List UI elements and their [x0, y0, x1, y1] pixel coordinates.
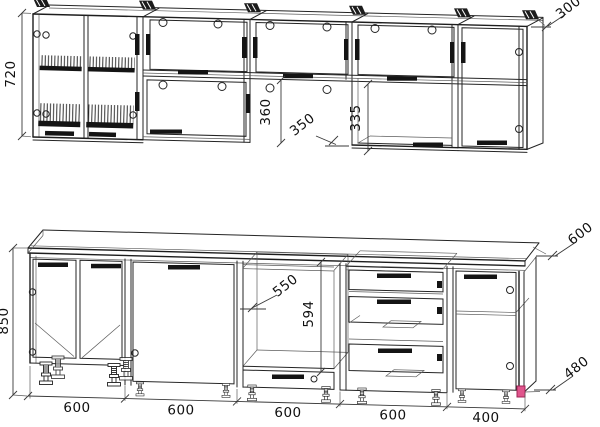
dim-label-335: 335	[348, 104, 364, 131]
dim-label-width-2: 600	[167, 403, 194, 419]
base-cabinet4-drawers	[340, 251, 457, 393]
wall-cabinet-dishrack	[34, 15, 136, 138]
dim-label-720: 720	[3, 60, 19, 87]
handle-bar	[272, 375, 304, 380]
handle-bar	[38, 263, 68, 268]
technical-drawing-canvas: 720 360 335 350 300	[0, 0, 600, 427]
handle-bar	[464, 275, 497, 280]
dim-label-width-3: 600	[274, 405, 301, 421]
handle-bar	[89, 132, 116, 137]
handle-bar	[378, 349, 412, 354]
dim-label-width-1: 600	[63, 400, 90, 416]
handle-bar	[377, 300, 411, 305]
handle-bar	[387, 77, 417, 81]
handle-bar	[45, 131, 74, 136]
handle-bar	[377, 274, 411, 279]
dim-label-594: 594	[301, 300, 317, 327]
technical-drawing-page: 720 360 335 350 300	[0, 0, 600, 427]
dim-label-360: 360	[258, 98, 274, 125]
dish-rack-icon	[38, 55, 135, 137]
base-cabinet2	[125, 259, 234, 385]
handle-bar	[413, 143, 443, 147]
base-cabinets-row	[28, 230, 539, 405]
highlight-marker	[517, 386, 525, 397]
dim-label-350: 350	[287, 110, 318, 139]
dim-label-600-depth: 600	[565, 219, 596, 248]
handle-bar	[168, 265, 200, 270]
base-cabinet1	[29, 254, 125, 366]
base-cabinet5	[447, 257, 536, 397]
handle-bar	[91, 264, 121, 269]
dim-label-width-4: 600	[379, 408, 406, 424]
dim-label-480: 480	[561, 353, 592, 382]
drawer-runner-blocks	[437, 281, 442, 361]
wall-flip-doors	[150, 20, 454, 81]
wall-cabinet5	[458, 28, 527, 153]
handle-bar	[150, 130, 182, 134]
handle-bar	[477, 141, 507, 146]
handle-bar	[283, 74, 313, 78]
dim-label-850: 850	[0, 307, 12, 334]
handle-bar	[178, 70, 208, 74]
dim-label-width-5: 400	[472, 410, 499, 426]
wall-cabinet2-lower-door	[143, 80, 250, 142]
